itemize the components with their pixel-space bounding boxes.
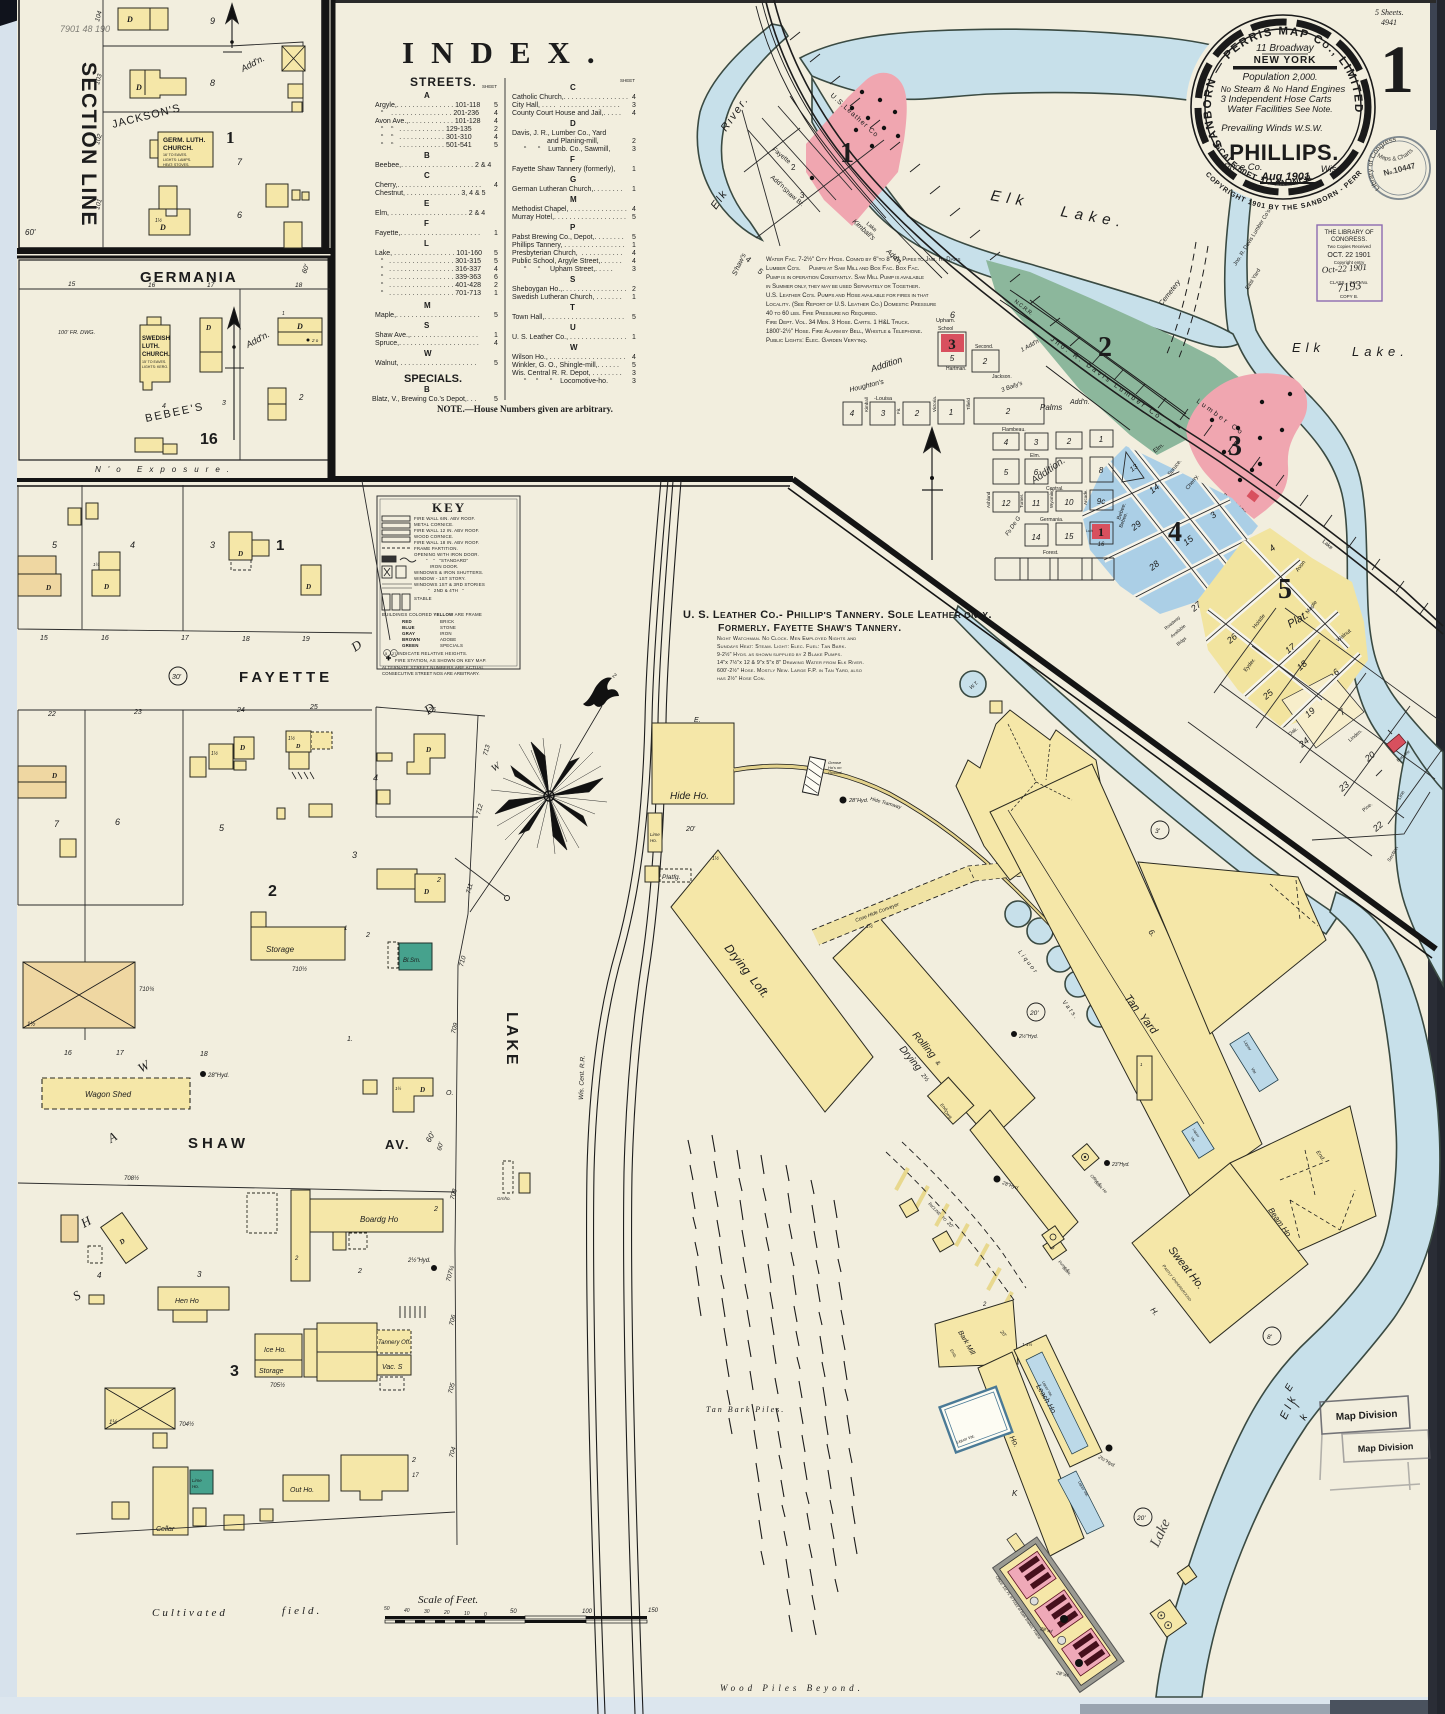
svg-text:1.: 1. [347, 1036, 353, 1043]
svg-text:16' TO EAVES.: 16' TO EAVES. [163, 153, 187, 157]
svg-text:2: 2 [494, 282, 498, 289]
svg-text:1: 1 [1098, 525, 1104, 539]
svg-text:Two Copies Received: Two Copies Received [1327, 244, 1371, 249]
svg-text:D: D [419, 1086, 425, 1094]
svg-text:1½: 1½ [712, 855, 720, 862]
svg-text:Luth: Luth [1086, 529, 1093, 533]
svg-text:O.: O. [446, 1090, 453, 1097]
svg-text:8: 8 [1099, 466, 1104, 475]
svg-text:Tan Bark Piles.: Tan Bark Piles. [706, 1405, 785, 1414]
svg-text:Bl.Sm.: Bl.Sm. [403, 958, 421, 964]
svg-text:W: W [570, 343, 578, 352]
svg-text:Tifield: Tifield [966, 398, 971, 410]
svg-text:2: 2 [298, 393, 304, 402]
svg-text:M: M [570, 195, 577, 204]
svg-text:5: 5 [494, 102, 498, 109]
svg-text:Ground.: Ground. [828, 770, 842, 775]
svg-text:16: 16 [1098, 542, 1105, 548]
svg-text:3: 3 [210, 540, 215, 550]
svg-text:Fir.: Fir. [896, 408, 901, 414]
svg-text:28"Hyd.: 28"Hyd. [207, 1073, 229, 1079]
svg-text:CONSECUTIVE STREET NOS ARE ARB: CONSECUTIVE STREET NOS ARE ARBITRARY. [382, 671, 480, 676]
svg-text:2: 2 [791, 163, 796, 172]
svg-text:18: 18 [200, 1051, 208, 1058]
svg-text:Wagon Shed: Wagon Shed [85, 1090, 132, 1099]
svg-text:Davis, J. R., Lumber Co., Yard: Davis, J. R., Lumber Co., Yard [512, 130, 606, 137]
svg-text:4: 4 [1004, 438, 1009, 447]
svg-text:5: 5 [494, 142, 498, 149]
svg-text:1: 1 [1099, 435, 1103, 444]
svg-text:4: 4 [494, 134, 498, 141]
svg-text:5: 5 [632, 314, 636, 321]
svg-text:“ 2ND & 4TH “: “ 2ND & 4TH “ [428, 588, 464, 593]
svg-text:Elk: Elk [1292, 340, 1325, 355]
svg-text:26: 26 [427, 707, 436, 714]
svg-text:16: 16 [148, 282, 156, 289]
svg-text:1-1½: 1-1½ [1022, 1341, 1033, 1347]
svg-text:2½"Hyd.: 2½"Hyd. [1018, 1033, 1038, 1040]
svg-text:20': 20' [685, 826, 696, 833]
svg-text:D: D [237, 550, 243, 558]
svg-text:2: 2 [294, 1256, 299, 1262]
svg-text:E.: E. [694, 717, 701, 724]
svg-text:“ . . . . . . . . . . . . .: “ . . . . . . . . . . . . . . . . . 401-… [381, 282, 481, 289]
svg-text:1800'-2½" HOSE. FIRE ALARM BY: 1800'-2½" HOSE. FIRE ALARM BY BELL, WHIS… [766, 328, 923, 335]
svg-text:WINDOWS & IRON SHUTTERS.: WINDOWS & IRON SHUTTERS. [414, 570, 483, 575]
svg-text:27: 27 [392, 651, 397, 656]
svg-text:14"x 7½"x 12 & 9"x 5"x 8" DRAW: 14"x 7½"x 12 & 9"x 5"x 8" DRAWING WATER … [717, 659, 864, 666]
svg-text:5: 5 [1004, 468, 1009, 477]
svg-text:“ “ . . . . . . . . . . .: “ “ . . . . . . . . . . . . 501-541 [381, 142, 472, 149]
svg-text:Lake.: Lake. [1352, 344, 1409, 359]
svg-text:BRICK: BRICK [440, 619, 454, 624]
svg-text:3: 3 [800, 191, 805, 200]
svg-text:4: 4 [632, 258, 636, 265]
svg-text:COPY B.: COPY B. [1340, 294, 1358, 299]
svg-text:Storage: Storage [259, 1368, 284, 1375]
svg-text:School: School [938, 326, 953, 332]
svg-text:2: 2 [632, 138, 636, 145]
svg-text:Winkler, G. O., Shingle-mill,.: Winkler, G. O., Shingle-mill,. . . . . . [512, 362, 619, 369]
svg-text:“ . . . . . . . . . . . . .: “ . . . . . . . . . . . . . . . . . 301-… [381, 258, 481, 265]
svg-text:5: 5 [950, 354, 955, 363]
svg-text:ADOBE: ADOBE [440, 637, 456, 642]
svg-text:D: D [103, 583, 109, 591]
svg-text:16: 16 [101, 635, 109, 642]
svg-text:3: 3 [632, 370, 636, 377]
svg-text:4: 4 [632, 250, 636, 257]
svg-text:FIRE WALL 12 IN. ABV ROOF.: FIRE WALL 12 IN. ABV ROOF. [414, 528, 479, 533]
svg-text:3: 3 [632, 266, 636, 273]
svg-text:CHURCH.: CHURCH. [163, 145, 193, 152]
svg-text:IRON: IRON [440, 631, 452, 636]
svg-text:D: D [159, 223, 166, 232]
svg-text:FRAME PARTITION.: FRAME PARTITION. [414, 546, 458, 551]
svg-text:1: 1 [632, 166, 636, 173]
svg-text:Storage: Storage [266, 945, 295, 954]
svg-text:“ . . . . . . . . . . . . .: “ . . . . . . . . . . . . . . . . . 316-… [381, 266, 481, 273]
svg-text:FIRE STATION, AS SHOWN ON KEY: FIRE STATION, AS SHOWN ON KEY MAP. [395, 658, 487, 663]
svg-text:4: 4 [162, 403, 166, 410]
svg-text:1: 1 [226, 128, 235, 147]
svg-text:Second.: Second. [975, 344, 993, 350]
svg-text:STABLE: STABLE [414, 596, 432, 601]
svg-text:D: D [425, 746, 431, 754]
svg-text:15: 15 [1065, 532, 1074, 541]
svg-text:1½: 1½ [109, 1419, 117, 1426]
svg-text:KEY: KEY [432, 500, 466, 515]
svg-text:F: F [570, 155, 575, 164]
svg-text:1: 1 [632, 242, 636, 249]
svg-text:AV.: AV. [385, 1137, 411, 1152]
svg-text:GREEN: GREEN [402, 643, 419, 648]
svg-text:2: 2 [1098, 332, 1112, 363]
svg-text:Elm.: Elm. [1030, 453, 1040, 459]
svg-text:3: 3 [632, 146, 636, 153]
svg-text:Kimball: Kimball [864, 397, 869, 412]
svg-text:Catholic Church,. . . . . . .: Catholic Church,. . . . . . . . . . . . … [512, 94, 628, 101]
svg-text:4: 4 [632, 94, 636, 101]
svg-text:WOOD CORNICE.: WOOD CORNICE. [414, 534, 453, 539]
svg-text:U. S. Leather Co., . . . . . .: U. S. Leather Co., . . . . . . . . . . .… [512, 334, 626, 341]
svg-text:2: 2 [982, 357, 988, 366]
svg-text:600'-2½" HOSE. MOSTLY NEW. LAR: 600'-2½" HOSE. MOSTLY NEW. LARGE F.P. IN… [717, 667, 862, 674]
svg-text:Walnut, . . . . . . . . . . .: Walnut, . . . . . . . . . . . . . . . . … [375, 360, 476, 367]
svg-text:2: 2 [1005, 407, 1011, 416]
svg-text:5: 5 [494, 360, 498, 367]
svg-text:P: P [570, 223, 576, 232]
svg-text:Chestnut, . . . . . . . . . .: Chestnut, . . . . . . . . . . . . . . 3,… [375, 190, 486, 197]
svg-text:2: 2 [914, 409, 920, 418]
svg-text:GERM. LUTH.: GERM. LUTH. [163, 137, 205, 144]
svg-text:FIRE WALL 6IN. ABV ROOF.: FIRE WALL 6IN. ABV ROOF. [414, 516, 475, 521]
svg-text:D: D [51, 772, 57, 780]
svg-text:4: 4 [632, 354, 636, 361]
svg-text:6: 6 [237, 210, 242, 220]
svg-text:4941: 4941 [1381, 18, 1397, 27]
svg-text:NOTE.—House Numbers given are: NOTE.—House Numbers given are arbitrary. [437, 404, 613, 414]
svg-text:Arcade.: Arcade. [1083, 489, 1088, 505]
svg-text:“ “ “ Locomotive-h: “ “ “ Locomotive-ho. [524, 378, 608, 385]
svg-text:Shaw Ave.,. . . . . . . . . .: Shaw Ave.,. . . . . . . . . . . . . . . … [375, 332, 478, 339]
svg-text:D: D [296, 322, 303, 331]
svg-text:C: C [424, 171, 430, 180]
svg-text:Jackson.: Jackson. [992, 374, 1012, 380]
svg-text:2½"Hyd.: 2½"Hyd. [407, 1257, 431, 1264]
svg-text:1½: 1½ [211, 750, 219, 757]
svg-text:Scale of Feet.: Scale of Feet. [418, 1594, 478, 1606]
svg-text:3: 3 [632, 102, 636, 109]
svg-text:“ “ . . . . . . . . . . .: “ “ . . . . . . . . . . . . 301-310 [381, 134, 472, 141]
svg-text:18: 18 [295, 282, 303, 289]
svg-text:Cherry,. . . . . . . . . . . .: Cherry,. . . . . . . . . . . . . . . . .… [375, 182, 481, 189]
svg-text:Forest.: Forest. [1043, 550, 1059, 556]
svg-text:6: 6 [950, 310, 955, 320]
svg-text:-Louisa: -Louisa [874, 396, 893, 402]
svg-text:60': 60' [25, 228, 36, 237]
svg-text:4: 4 [494, 340, 498, 347]
svg-text:Germania.: Germania. [1040, 517, 1063, 523]
svg-text:28"Hyd.: 28"Hyd. [848, 798, 868, 804]
svg-text:17: 17 [181, 635, 190, 642]
svg-text:STONE: STONE [440, 625, 456, 630]
svg-text:2: 2 [632, 286, 636, 293]
svg-text:A: A [424, 91, 430, 100]
svg-text:5: 5 [632, 214, 636, 221]
svg-text:Beebee,. . . . . . . . . . . .: Beebee,. . . . . . . . . . . . . . . . .… [375, 162, 491, 169]
svg-text:Wood Piles Beyond.: Wood Piles Beyond. [720, 1683, 864, 1693]
svg-text:G: G [570, 175, 576, 184]
svg-text:2: 2 [494, 126, 498, 133]
svg-text:20: 20 [443, 1610, 450, 1616]
svg-text:23: 23 [133, 709, 142, 716]
svg-text:16: 16 [200, 431, 218, 448]
svg-text:Spruce,. . . . . . . . . . . .: Spruce,. . . . . . . . . . . . . . . . .… [375, 340, 479, 347]
svg-text:5: 5 [494, 396, 498, 403]
svg-text:10: 10 [1065, 498, 1074, 507]
svg-text:“ “ "STANDARD": “ “ "STANDARD" [426, 558, 468, 563]
svg-text:30': 30' [172, 674, 182, 681]
svg-text:Murray Hotel,. . . . . . . . .: Murray Hotel,. . . . . . . . . . . . . .… [512, 214, 626, 221]
svg-text:D: D [239, 744, 245, 752]
svg-text:Wis. Central R. R. Depot, . .: Wis. Central R. R. Depot, . . . . . . . … [512, 370, 622, 377]
svg-text:11: 11 [1032, 499, 1040, 508]
svg-text:14: 14 [1032, 533, 1041, 542]
svg-text:T: T [570, 303, 575, 312]
svg-text:Presbyterian Church, . . . .: Presbyterian Church, . . . . . . . . . .… [512, 250, 623, 257]
svg-text:“ “ . . . . . . . . . . .: “ “ . . . . . . . . . . . . 129-135 [381, 126, 472, 133]
svg-text:4: 4 [130, 540, 135, 550]
svg-text:17: 17 [116, 1050, 125, 1057]
svg-text:1: 1 [344, 926, 347, 932]
svg-text:4: 4 [850, 409, 855, 418]
svg-text:B: B [424, 151, 430, 160]
svg-text:4: 4 [494, 110, 498, 117]
svg-text:2: 2 [982, 1302, 987, 1308]
svg-text:20': 20' [1136, 1515, 1146, 1522]
svg-text:Boardg Ho: Boardg Ho [360, 1215, 399, 1224]
svg-text:D: D [45, 584, 51, 592]
svg-text:1: 1 [632, 186, 636, 193]
svg-text:WINDOW - 1ST STORY.: WINDOW - 1ST STORY. [414, 576, 466, 581]
svg-text:Add'n.: Add'n. [1069, 399, 1090, 406]
svg-text:3: 3 [222, 400, 226, 407]
svg-text:D: D [126, 15, 133, 24]
svg-text:30: 30 [424, 1609, 430, 1615]
svg-text:SHAW: SHAW [188, 1135, 249, 1152]
svg-text:705½: 705½ [270, 1382, 285, 1389]
svg-text:Tannery Off.: Tannery Off. [378, 1340, 411, 1346]
svg-text:“ . . . . . . . . . . . . .: “ . . . . . . . . . . . . . . . . . 339-… [381, 274, 481, 281]
svg-text:GRAY: GRAY [402, 631, 415, 636]
svg-text:WINDOWS 1ST & 3RD STORIES: WINDOWS 1ST & 3RD STORIES [414, 582, 485, 587]
svg-text:3: 3 [948, 337, 956, 353]
svg-text:2 o: 2 o [311, 338, 319, 343]
svg-text:Out Ho.: Out Ho. [290, 1487, 314, 1494]
svg-text:F: F [424, 219, 429, 228]
svg-text:5: 5 [632, 234, 636, 241]
svg-text:LIGHTS: KERO.: LIGHTS: KERO. [142, 365, 168, 369]
svg-text:U. S. LEATHER CO.- PHILLIP'S T: U. S. LEATHER CO.- PHILLIP'S TANNERY. SO… [683, 609, 992, 621]
svg-text:100' FR. DWG.: 100' FR. DWG. [58, 330, 95, 336]
svg-text:704½: 704½ [179, 1421, 194, 1428]
svg-text:D: D [570, 119, 576, 128]
svg-text:15: 15 [68, 281, 76, 288]
svg-text:S: S [570, 275, 576, 284]
svg-text:3: 3 [881, 409, 886, 418]
svg-text:1: 1 [494, 230, 498, 237]
svg-text:Wyoming.: Wyoming. [1049, 488, 1054, 508]
svg-text:5: 5 [494, 312, 498, 319]
svg-text:Lake, . . . . . . . . . . . .: Lake, . . . . . . . . . . . . . . . . 10… [375, 250, 482, 257]
svg-text:Ho.: Ho. [650, 838, 657, 843]
svg-text:OPENING WITH IRON DOOR.: OPENING WITH IRON DOOR. [414, 552, 479, 557]
svg-text:4: 4 [97, 1271, 102, 1280]
svg-text:6: 6 [494, 274, 498, 281]
svg-text:3: 3 [197, 1270, 202, 1279]
svg-text:SPECIALS.: SPECIALS. [404, 373, 462, 385]
svg-text:710½: 710½ [292, 966, 307, 973]
svg-text:ALTERNATE STREET NUMBERS ARE A: ALTERNATE STREET NUMBERS ARE ACTUAL [382, 665, 485, 670]
svg-text:3: 3 [632, 378, 636, 385]
svg-text:1: 1 [494, 332, 498, 339]
svg-text:Elm, . . . . . . . . . . . . .: Elm, . . . . . . . . . . . . . . . . . .… [375, 210, 485, 217]
svg-text:SHEET: SHEET [482, 84, 497, 89]
svg-text:4: 4 [1168, 517, 1182, 548]
svg-text:THE LIBRARY OF: THE LIBRARY OF [1324, 230, 1373, 236]
svg-text:3': 3' [1155, 828, 1161, 835]
svg-text:K: K [1012, 1489, 1018, 1498]
svg-text:5 Sheets.: 5 Sheets. [1375, 8, 1403, 17]
svg-text:1½: 1½ [288, 735, 296, 742]
svg-text:1: 1 [282, 311, 285, 317]
svg-text:Public School, Argyle Street,.: Public School, Argyle Street,. . . . . . [512, 258, 622, 265]
svg-text:FAYETTE: FAYETTE [239, 669, 333, 686]
svg-text:100: 100 [582, 1609, 593, 1615]
svg-text:SPECIALS: SPECIALS [440, 643, 463, 648]
svg-text:WATER FAC. 7-2½" CITY HYDS. CO: WATER FAC. 7-2½" CITY HYDS. CONN'D BY 6"… [766, 256, 960, 263]
svg-text:German Lutheran Church,. . . .: German Lutheran Church,. . . . . . . . [512, 186, 623, 193]
svg-text:23"Hyd.: 23"Hyd. [1111, 1162, 1130, 1168]
svg-text:Lime: Lime [192, 1478, 202, 1483]
svg-text:8: 8 [210, 78, 215, 88]
svg-text:11 Broadway: 11 Broadway [1256, 43, 1315, 54]
svg-text:D: D [295, 744, 301, 750]
svg-text:S: S [424, 321, 430, 330]
svg-text:4: 4 [632, 206, 636, 213]
svg-text:County Court House and Jail,.: County Court House and Jail,. . . . . [512, 110, 621, 117]
svg-text:LUTH.: LUTH. [142, 344, 160, 350]
svg-text:3: 3 [230, 1363, 239, 1380]
svg-text:U: U [570, 323, 576, 332]
svg-text:INDEX.: INDEX. [402, 35, 612, 70]
svg-text:Population 2,000.: Population 2,000. [1242, 72, 1317, 83]
svg-text:4: 4 [494, 118, 498, 125]
svg-text:1: 1 [632, 294, 636, 301]
svg-text:Town Hall,. . . . . . . . . .: Town Hall,. . . . . . . . . . . . . . . … [512, 314, 624, 321]
svg-text:SHEET: SHEET [620, 78, 635, 83]
svg-text:4: 4 [373, 773, 378, 783]
svg-text:25: 25 [309, 704, 318, 711]
svg-text:BROWN: BROWN [402, 637, 420, 642]
svg-text:Flambeau.: Flambeau. [1002, 427, 1026, 433]
svg-text:STREETS.: STREETS. [410, 75, 477, 89]
svg-text:50: 50 [384, 1606, 390, 1612]
svg-text:5: 5 [632, 362, 636, 369]
svg-text:FIRE WALL 18 IN. ABV ROOF.: FIRE WALL 18 IN. ABV ROOF. [414, 540, 479, 545]
svg-text:LOCALITY. (SEE REPORT OF U.S.: LOCALITY. (SEE REPORT OF U.S. LEATHER CO… [766, 302, 936, 308]
svg-text:3: 3 [1034, 438, 1039, 447]
svg-text:Argyle,. . . . . . . . . . . .: Argyle,. . . . . . . . . . . . . . . 101… [375, 102, 480, 109]
svg-text:4: 4 [494, 266, 498, 273]
svg-text:B: B [424, 385, 430, 394]
svg-text:2: 2 [436, 877, 441, 884]
svg-text:22: 22 [47, 711, 56, 718]
svg-text:Swedish Lutheran Church, . . .: Swedish Lutheran Church, . . . . . . . [512, 294, 622, 301]
svg-text:Avon Ave.,. . . . . . . . . .: Avon Ave.,. . . . . . . . . . . . 101-12… [375, 118, 481, 125]
svg-text:Vac. S: Vac. S [382, 1364, 403, 1371]
svg-text:HAS 2½" HOSE CON.: HAS 2½" HOSE CON. [717, 675, 765, 682]
svg-text:HEAT: STOVES.: HEAT: STOVES. [163, 163, 189, 167]
svg-text:2: 2 [357, 1268, 362, 1275]
svg-text:IRON DOOR.: IRON DOOR. [430, 564, 459, 569]
svg-text:2: 2 [365, 932, 370, 939]
svg-text:“ . . . . . . . . . . . . .: “ . . . . . . . . . . . . . . . . . 701-… [381, 290, 481, 297]
svg-text:W: W [424, 349, 432, 358]
svg-text:16: 16 [64, 1050, 72, 1057]
svg-text:17: 17 [207, 282, 215, 289]
svg-text:Fayette,. . . . . . . . . . .: Fayette,. . . . . . . . . . . . . . . . … [375, 230, 480, 237]
svg-text:NEW YORK: NEW YORK [1254, 55, 1317, 66]
svg-text:1: 1 [632, 334, 636, 341]
svg-text:5: 5 [1278, 574, 1292, 605]
svg-text:Water Facilities See Note.: Water Facilities See Note. [1227, 104, 1332, 115]
svg-text:5: 5 [494, 258, 498, 265]
svg-text:CHURCH.: CHURCH. [142, 352, 170, 358]
svg-text:Lime: Lime [650, 832, 660, 837]
svg-text:Grnho.: Grnho. [497, 1196, 511, 1201]
svg-text:SWEDISH: SWEDISH [142, 336, 170, 342]
svg-text:Phillips Tannery, . . . . . .: Phillips Tannery, . . . . . . . . . . . … [512, 242, 625, 249]
svg-text:1: 1 [949, 408, 953, 417]
svg-text:3: 3 [352, 850, 357, 860]
svg-text:LAKE: LAKE [503, 1012, 520, 1068]
svg-text:C: C [570, 83, 576, 92]
svg-text:17: 17 [412, 1473, 419, 1479]
svg-text:N'o Exposure.: N'o Exposure. [95, 465, 236, 474]
svg-text:19: 19 [302, 636, 310, 643]
svg-text:Hartman.: Hartman. [946, 366, 967, 372]
svg-text:Platfg.: Platfg. [662, 874, 681, 881]
svg-text:Ho.: Ho. [192, 1484, 199, 1489]
svg-text:Ashland: Ashland [986, 491, 991, 508]
svg-text:BUILDINGS COLORED YELLOW ARE F: BUILDINGS COLORED YELLOW ARE FRAME [382, 612, 482, 617]
svg-text:FORMERLY. FAYETTE SHAW'S TANNE: FORMERLY. FAYETTE SHAW'S TANNERY. [718, 622, 902, 634]
svg-text:BLUE: BLUE [402, 625, 415, 630]
svg-text:“ . . . . . . . . . . . . .: “ . . . . . . . . . . . . . . . . 201-23… [381, 110, 479, 117]
svg-text:Hen Ho: Hen Ho [175, 1298, 199, 1305]
svg-text:1: 1 [276, 537, 284, 554]
svg-text:6: 6 [115, 817, 120, 827]
svg-text:CONGRESS.: CONGRESS. [1331, 237, 1367, 243]
svg-text:8': 8' [1267, 1334, 1273, 1341]
svg-text:Blatz, V., Brewing Co.'s Depot: Blatz, V., Brewing Co.'s Depot,. . . [372, 396, 477, 403]
svg-text:Turner.: Turner. [1019, 494, 1024, 508]
svg-text:40: 40 [404, 1608, 410, 1614]
svg-text:2: 2 [411, 1457, 416, 1464]
svg-text:Wis.: Wis. [1321, 164, 1339, 175]
svg-text:9c: 9c [1097, 497, 1105, 506]
